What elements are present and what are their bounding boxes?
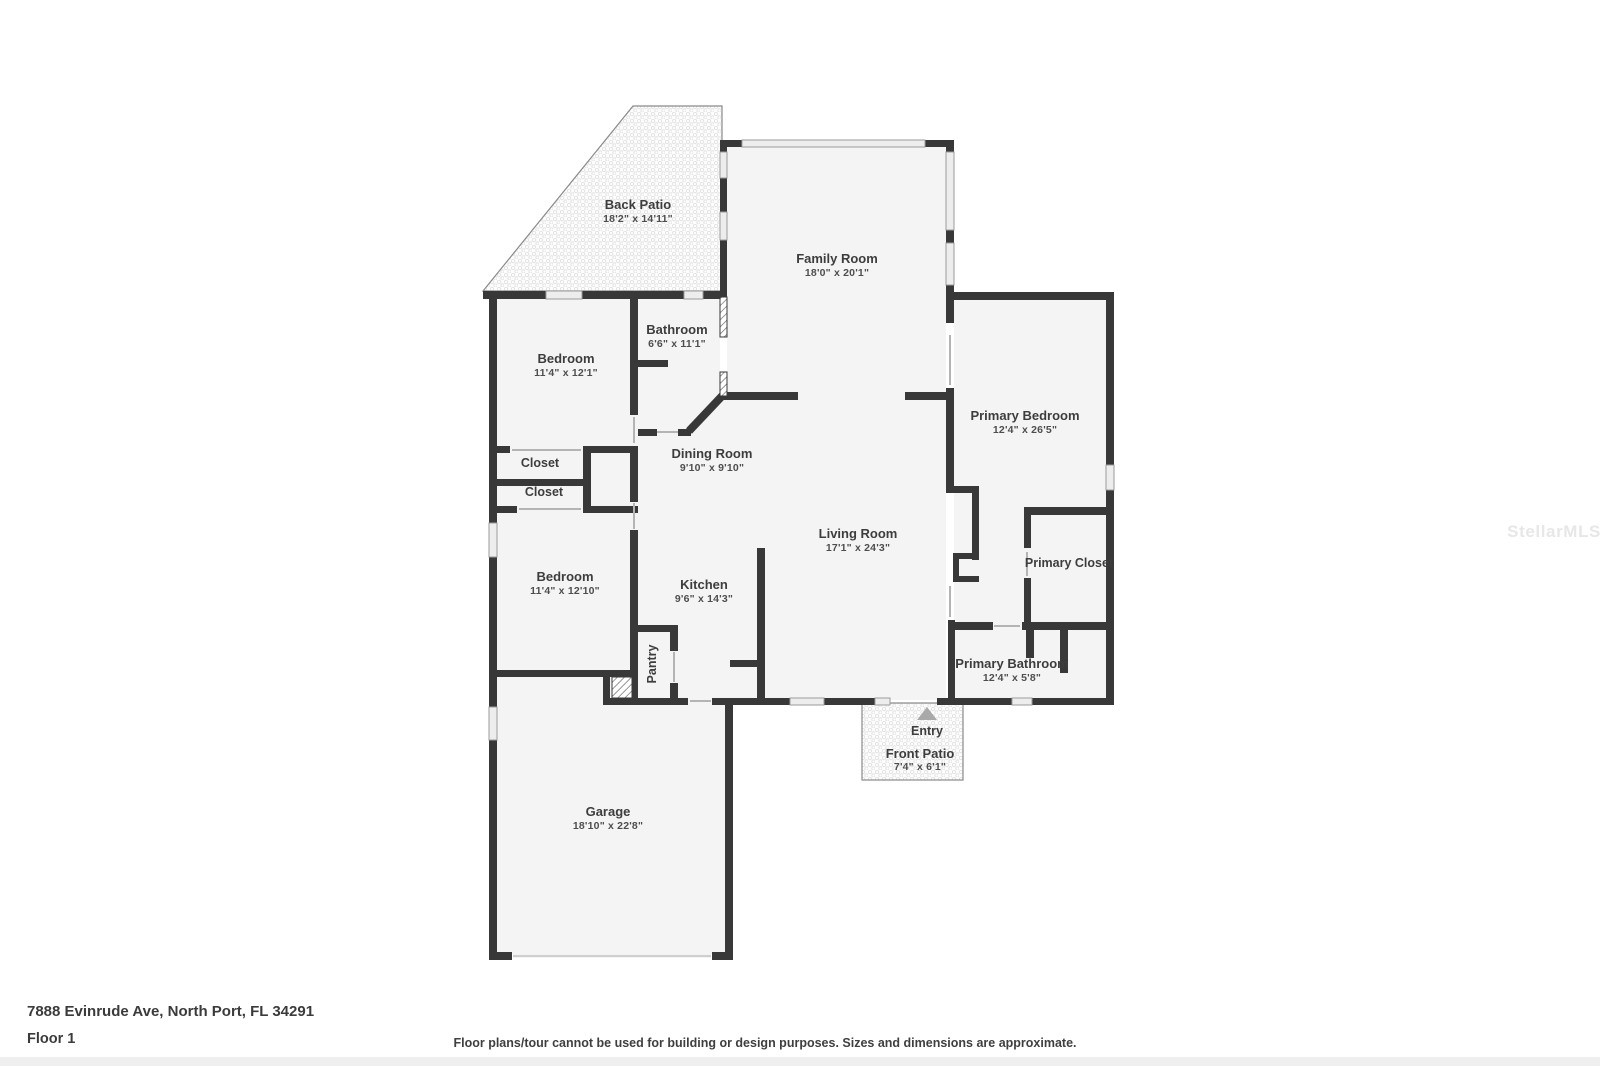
label-bathroom: Bathroom (646, 322, 707, 337)
disclaimer-text: Floor plans/tour cannot be used for buil… (0, 1036, 1530, 1050)
label-bedroom-bottom: Bedroom (536, 569, 593, 584)
floor-plan: Back Patio 18'2" x 14'11" Family Room 18… (0, 0, 1600, 1066)
label-front-patio: Front Patio (886, 746, 955, 761)
bottom-bar (0, 1057, 1600, 1066)
label-bedroom-top: Bedroom (537, 351, 594, 366)
label-closet-lower: Closet (525, 485, 564, 499)
label-primary-closet: Primary Closet (1025, 556, 1114, 570)
address-text: 7888 Evinrude Ave, North Port, FL 34291 (27, 1003, 314, 1020)
dims-living-room: 17'1" x 24'3" (826, 542, 890, 554)
dims-bathroom: 6'6" x 11'1" (648, 338, 706, 350)
label-primary-bedroom: Primary Bedroom (970, 408, 1079, 423)
label-back-patio: Back Patio (605, 197, 672, 212)
dims-primary-bathroom: 12'4" x 5'8" (983, 672, 1041, 684)
dims-family-room: 18'0" x 20'1" (805, 267, 869, 279)
dims-bedroom-bottom: 11'4" x 12'10" (530, 585, 600, 597)
label-closet-upper: Closet (521, 456, 560, 470)
dims-front-patio: 7'4" x 6'1" (894, 761, 946, 773)
stellar-mls-watermark: StellarMLS (1507, 522, 1600, 541)
dims-primary-bedroom: 12'4" x 26'5" (993, 424, 1057, 436)
label-dining-room: Dining Room (672, 446, 753, 461)
label-kitchen: Kitchen (680, 577, 728, 592)
label-garage: Garage (586, 804, 631, 819)
label-entry: Entry (911, 724, 943, 738)
back-patio-area (483, 106, 722, 291)
label-family-room: Family Room (796, 251, 878, 266)
dims-kitchen: 9'6" x 14'3" (675, 593, 733, 605)
dims-garage: 18'10" x 22'8" (573, 820, 643, 832)
dims-bedroom-top: 11'4" x 12'1" (534, 367, 598, 379)
dims-back-patio: 18'2" x 14'11" (603, 213, 673, 225)
dims-dining-room: 9'10" x 9'10" (680, 462, 744, 474)
label-primary-bathroom: Primary Bathroom (955, 656, 1068, 671)
label-living-room: Living Room (819, 526, 898, 541)
label-pantry: Pantry (645, 645, 659, 684)
